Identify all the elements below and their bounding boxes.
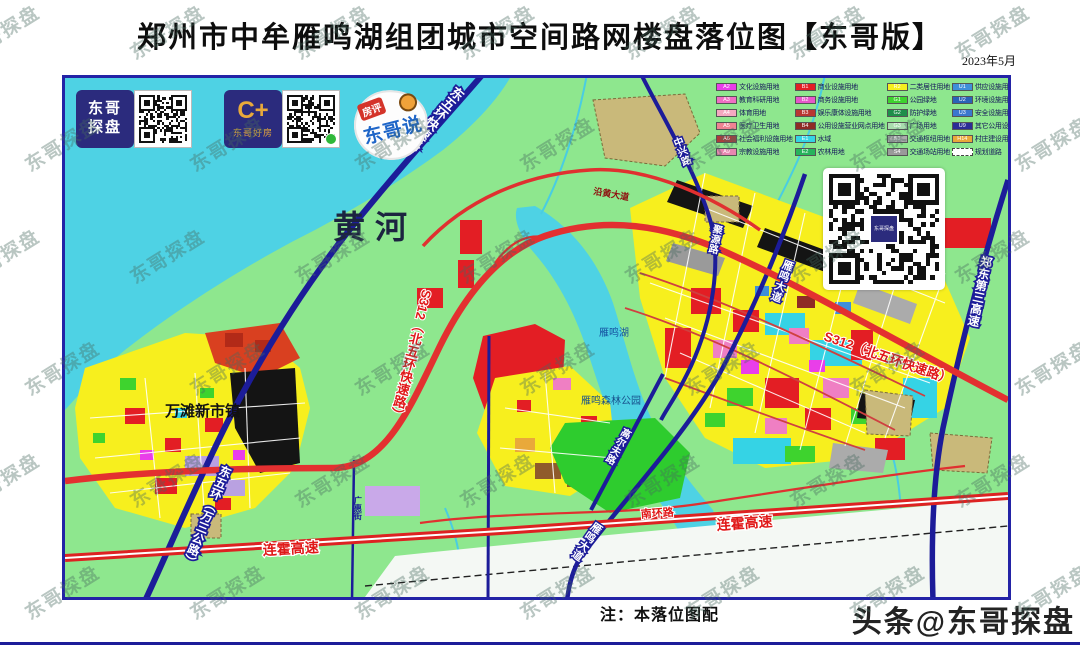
- legend-label: 文化设施用地: [739, 82, 779, 92]
- legend-label: 商业设施用地: [818, 82, 858, 92]
- legend-label: 教育科研用地: [739, 95, 779, 105]
- legend-swatch: E1: [795, 135, 816, 143]
- legend-swatch: R2: [887, 83, 908, 91]
- land-use-legend: A2文化设施用地A3教育科研用地A4体育用地A5医疗卫生用地A6社会福利设施用地…: [716, 81, 1004, 157]
- legend-item: A3教育科研用地: [716, 94, 793, 105]
- legend-label: 规划道路: [975, 147, 1002, 157]
- dongge-tanpan-logo: 东哥 探盘: [76, 90, 134, 148]
- watermark-tile: 东哥探盘: [1009, 334, 1080, 401]
- legend-item: B2商务设施用地: [795, 94, 885, 105]
- dongge-haofang-logo: C+ 东哥好房: [224, 90, 282, 148]
- yanming-lake-label: 雁鸣湖: [599, 326, 629, 339]
- legend-item: B1商业设施用地: [795, 81, 885, 92]
- legend-swatch: S4: [887, 148, 908, 156]
- wechat-badge-icon: [325, 133, 337, 145]
- page-root: 郑州市中牟雁鸣湖组团城市空间路网楼盘落位图【东哥版】 2023年5月: [0, 0, 1080, 651]
- logo-text: 探盘: [88, 119, 122, 138]
- yellow-river-label: 黄河: [333, 209, 417, 245]
- logo-text: 东哥: [88, 100, 122, 119]
- legend-swatch: A3: [716, 96, 737, 104]
- legend-swatch: A6: [716, 135, 737, 143]
- legend-swatch: U1: [952, 83, 973, 91]
- legend-item: S3交通枢纽用地: [887, 133, 950, 144]
- legend-label: 农林用地: [818, 147, 845, 157]
- legend-item: 规划道路: [952, 146, 1011, 157]
- page-title: 郑州市中牟雁鸣湖组团城市空间路网楼盘落位图【东哥版】: [0, 14, 1080, 56]
- legend-label: 其它公用设施用地: [975, 121, 1011, 131]
- legend-label: 交通枢纽用地: [910, 134, 950, 144]
- legend-swatch: S3: [887, 135, 908, 143]
- legend-label: 公园绿地: [910, 95, 937, 105]
- legend-item: B4公用设施营业网点用地: [795, 120, 885, 131]
- legend-label: 公用设施营业网点用地: [818, 121, 885, 131]
- legend-item: A5医疗卫生用地: [716, 120, 793, 131]
- map-frame: 黄河 万滩新市镇 雁鸣湖 雁鸣森林公园 东五环快速路 S312（北五环快速路） …: [62, 75, 1011, 600]
- road-label-lianhuo-west: 连霍高速: [262, 539, 319, 558]
- legend-item: G1公园绿地: [887, 94, 950, 105]
- legend-item: U9其它公用设施用地: [952, 120, 1011, 131]
- dongge-haofang-qr-code: [282, 90, 340, 148]
- legend-label: 体育用地: [739, 108, 766, 118]
- dongge-tanpan-qr-code: [134, 90, 192, 148]
- legend-label: 商务设施用地: [818, 95, 858, 105]
- legend-item: E2农林用地: [795, 146, 885, 157]
- legend-label: 供应设施用地: [975, 82, 1011, 92]
- legend-swatch: G3: [887, 122, 908, 130]
- legend-item: R2二类居住用地: [887, 81, 950, 92]
- legend-swatch: H14: [952, 135, 973, 143]
- forest-park-label: 雁鸣森林公园: [581, 394, 641, 407]
- legend-item: A2文化设施用地: [716, 81, 793, 92]
- watermark-tile: 东哥探盘: [0, 222, 45, 289]
- legend-label: 环境设施用地: [975, 95, 1011, 105]
- legend-item: G2防护绿地: [887, 107, 950, 118]
- legend-label: 社会福利设施用地: [739, 134, 793, 144]
- map-date: 2023年5月: [962, 52, 1016, 69]
- legend-label: 广场用地: [910, 121, 937, 131]
- legend-item: B3娱乐康体设施用地: [795, 107, 885, 118]
- legend-column: A2文化设施用地A3教育科研用地A4体育用地A5医疗卫生用地A6社会福利设施用地…: [716, 81, 793, 157]
- legend-label: 二类居住用地: [910, 82, 950, 92]
- legend-swatch: B3: [795, 109, 816, 117]
- legend-swatch: U9: [952, 122, 973, 130]
- legend-label: 水域: [818, 134, 831, 144]
- corner-watermark: 头条@东哥探盘: [852, 597, 1075, 641]
- legend-label: 防护绿地: [910, 108, 937, 118]
- legend-item: E1水域: [795, 133, 885, 144]
- logo-row: 东哥 探盘 C+ 东哥好房 房评 东哥说: [76, 90, 428, 154]
- note-text: 注：本落位图配: [600, 601, 719, 625]
- legend-swatch: G1: [887, 96, 908, 104]
- legend-label: 医疗卫生用地: [739, 121, 779, 131]
- legend-swatch: B1: [795, 83, 816, 91]
- legend-item: A6社会福利设施用地: [716, 133, 793, 144]
- legend-label: 村庄建设用地: [975, 134, 1011, 144]
- legend-item: U1供应设施用地: [952, 81, 1011, 92]
- legend-swatch: A2: [716, 83, 737, 91]
- legend-swatch: B4: [795, 122, 816, 130]
- watermark-tile: 东哥探盘: [1009, 110, 1080, 177]
- watermark-tile: 东哥探盘: [0, 446, 45, 513]
- legend-label: 安全设施用地: [975, 108, 1011, 118]
- legend-swatch: U2: [952, 96, 973, 104]
- legend-item: S4交通场站用地: [887, 146, 950, 157]
- cplus-mark: C+: [237, 99, 268, 123]
- legend-column: U1供应设施用地U2环境设施用地U3安全设施用地U9其它公用设施用地H14村庄建…: [952, 81, 1011, 157]
- legend-item: A9宗教设施用地: [716, 146, 793, 157]
- legend-item: H14村庄建设用地: [952, 133, 1011, 144]
- qr-center-logo: 东哥探盘: [869, 214, 899, 244]
- legend-swatch: G2: [887, 109, 908, 117]
- legend-swatch: A9: [716, 148, 737, 156]
- legend-swatch: B2: [795, 96, 816, 104]
- bottom-border: [0, 642, 1080, 645]
- legend-item: A4体育用地: [716, 107, 793, 118]
- legend-swatch: E2: [795, 148, 816, 156]
- legend-item: U3安全设施用地: [952, 107, 1011, 118]
- fangping-dongge-sticker: 房评 东哥说: [349, 85, 432, 165]
- legend-item: U2环境设施用地: [952, 94, 1011, 105]
- road-label-guanghui: 广惠街: [354, 495, 363, 521]
- legend-label: 交通场站用地: [910, 147, 950, 157]
- legend-swatch: A4: [716, 109, 737, 117]
- wantan-label: 万滩新市镇: [164, 402, 240, 420]
- legend-swatch: A5: [716, 122, 737, 130]
- legend-swatch: [952, 148, 973, 156]
- legend-item: G3广场用地: [887, 120, 950, 131]
- legend-column: R2二类居住用地G1公园绿地G2防护绿地G3广场用地S3交通枢纽用地S4交通场站…: [887, 81, 950, 157]
- legend-label: 娱乐康体设施用地: [818, 108, 872, 118]
- qr-code: 东哥探盘: [823, 168, 945, 290]
- legend-swatch: U3: [952, 109, 973, 117]
- legend-column: B1商业设施用地B2商务设施用地B3娱乐康体设施用地B4公用设施营业网点用地E1…: [795, 81, 885, 157]
- legend-label: 宗教设施用地: [739, 147, 779, 157]
- logo-text: 东哥好房: [233, 126, 273, 139]
